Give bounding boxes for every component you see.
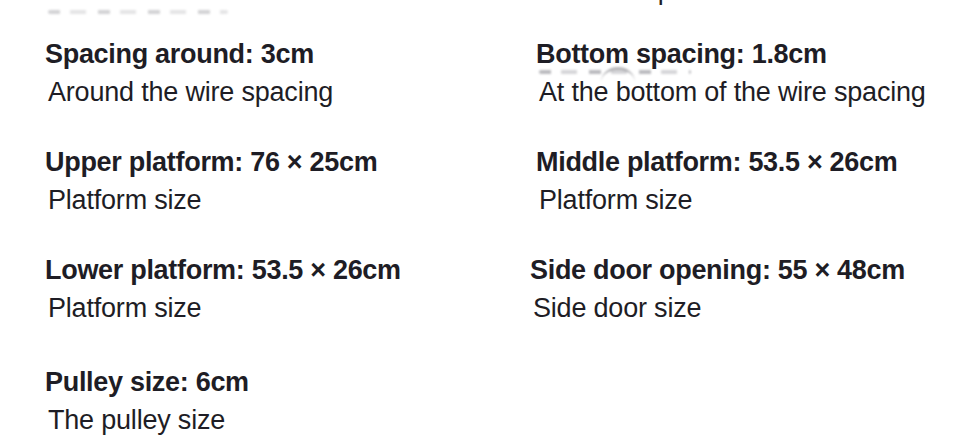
spec-heading: Upper platform: 76 × 25cm: [45, 145, 377, 179]
spec-heading: Middle platform: 53.5 × 26cm: [536, 145, 897, 179]
spec-heading: Spacing around: 3cm: [45, 37, 333, 71]
watermark-smudge: [48, 10, 228, 14]
spec-description: Around the wire spacing: [45, 76, 333, 109]
spec-item-middle-platform: Middle platform: 53.5 × 26cm Platform si…: [536, 145, 897, 217]
spec-item-lower-platform: Lower platform: 53.5 × 26cm Platform siz…: [45, 253, 401, 325]
spec-item-upper-platform: Upper platform: 76 × 25cm Platform size: [45, 145, 377, 217]
spec-item-side-door-opening: Side door opening: 55 × 48cm Side door s…: [530, 253, 905, 325]
spec-item-top-window-clipped: At the top of the window size: [556, 0, 897, 7]
spec-heading: Side door opening: 55 × 48cm: [530, 253, 905, 287]
spec-description: The pulley size: [45, 404, 249, 436]
spec-description: Platform size: [45, 184, 377, 217]
spec-description: At the bottom of the wire spacing: [536, 76, 926, 109]
spec-item-bottom-spacing: Bottom spacing: 1.8cm At the bottom of t…: [536, 37, 926, 109]
spec-item-spacing-around: Spacing around: 3cm Around the wire spac…: [45, 37, 333, 109]
spec-item-front-door-clipped: Front door size: [46, 0, 226, 7]
spec-description: Platform size: [536, 184, 897, 217]
spec-sheet: Front door size At the top of the window…: [0, 0, 960, 436]
spec-heading: Bottom spacing: 1.8cm: [536, 37, 926, 71]
spec-heading: Lower platform: 53.5 × 26cm: [45, 253, 401, 287]
spec-description: Front door size: [46, 0, 226, 7]
spec-heading: Pulley size: 6cm: [45, 365, 249, 399]
spec-description: Side door size: [530, 292, 905, 325]
spec-item-pulley-size: Pulley size: 6cm The pulley size: [45, 365, 249, 436]
spec-description: Platform size: [45, 292, 401, 325]
spec-description: At the top of the window size: [556, 0, 897, 7]
